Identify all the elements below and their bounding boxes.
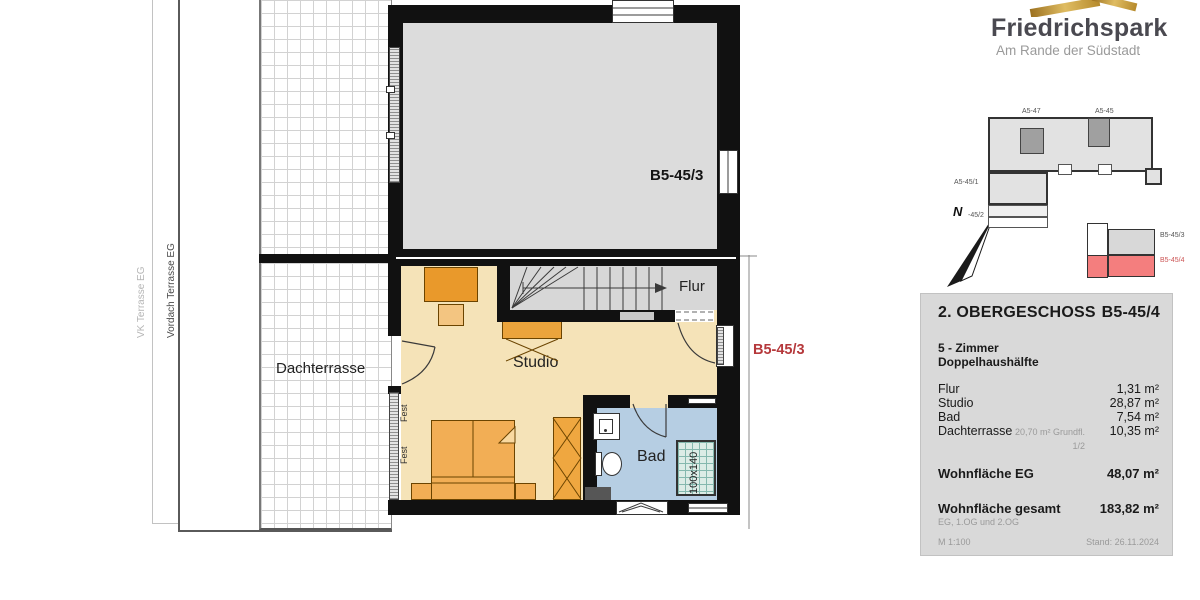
bad-door-gap [630, 395, 668, 408]
siteplan-label-a5451: A5-45/1 [954, 179, 979, 186]
nightstand [515, 483, 536, 500]
party-wall-seam [396, 257, 736, 259]
desk [424, 267, 478, 302]
neighbor-room-floor [403, 23, 717, 249]
siteplan-notch [1058, 164, 1072, 175]
neighbor-right-window [719, 150, 738, 194]
door-threshold [620, 312, 654, 320]
total-note: EG, 1.OG und 2.OG [938, 517, 1019, 527]
siteplan-right-stub [1145, 168, 1162, 185]
key-plan: B5-45/3 B5-45/4 [1080, 218, 1200, 288]
scale-label: M 1:100 [938, 537, 971, 547]
bad-label: Bad [637, 448, 665, 466]
area-label: Studio [938, 396, 973, 410]
siteplan-notch [1098, 164, 1112, 175]
bed [431, 420, 515, 500]
info-panel: 2. OBERGESCHOSS B5-45/4 5 - Zimmer Doppe… [920, 293, 1173, 556]
panel-unit-title: B5-45/4 [1102, 304, 1160, 322]
siteplan-terrace-strip [988, 205, 1048, 217]
flur-opening [675, 310, 714, 322]
area-label: Bad [938, 410, 960, 424]
area-value: 28,87 m² [1095, 396, 1159, 410]
logo-title: Friedrichspark [991, 14, 1167, 43]
left-wall-upper [388, 266, 401, 336]
keyplan-unit-upper [1108, 229, 1155, 255]
studio-left-window-strip [389, 392, 399, 500]
total-row: Wohnfläche EG 48,07 m² [938, 466, 1159, 481]
area-value: 1,31 m² [1095, 382, 1159, 396]
area-label: Flur [938, 382, 960, 396]
area-row: Bad 7,54 m² [938, 410, 1159, 424]
panel-footer: M 1:100 Stand: 26.11.2024 [938, 537, 1159, 547]
toilet-bowl [602, 452, 622, 476]
area-value: 10,35 m² [1095, 424, 1159, 438]
north-letter: N [953, 204, 962, 219]
terrace-divider-wall [259, 254, 389, 263]
wardrobe [553, 417, 581, 500]
date-label: Stand: 26.11.2024 [1086, 537, 1159, 547]
vk-terrasse-label: VK Terrasse EG [136, 228, 147, 338]
keyplan-left-bottom [1087, 255, 1108, 278]
shower-window [688, 503, 728, 513]
siteplan-label-452: -45/2 [968, 212, 984, 219]
siteplan-label-a545: A5-45 [1095, 108, 1114, 115]
panel-type-line: 5 - Zimmer [938, 341, 1039, 355]
fest-label: Fest [399, 396, 409, 422]
upper-terrace-grid [259, 0, 392, 254]
area-note: 20,70 m² Grundfl. 1/2 [1012, 425, 1085, 453]
area-value: 7,54 m² [1095, 410, 1159, 424]
siteplan-dark-room [1020, 128, 1044, 154]
neighbor-room-label: B5-45/3 [650, 167, 703, 184]
total-row: Wohnfläche gesamt 183,82 m² [938, 501, 1159, 516]
panel-floor-title: 2. OBERGESCHOSS [938, 304, 1096, 322]
siteplan-label-a547: A5-47 [1022, 108, 1041, 115]
siteplan-left-wing [988, 172, 1048, 205]
area-row: Flur 1,31 m² [938, 382, 1159, 396]
studio-label: Studio [513, 354, 558, 372]
table [502, 319, 562, 339]
total-value: 48,07 m² [1107, 466, 1159, 481]
keyplan-label-upper: B5-45/3 [1160, 232, 1185, 239]
vordach-terrasse-label: Vordach Terrasse EG [166, 218, 177, 338]
right-wall [717, 266, 740, 500]
adjacent-unit-label: B5-45/3 [753, 342, 805, 358]
area-row: Dachterrasse 20,70 m² Grundfl. 1/2 10,35… [938, 424, 1159, 453]
toilet-tank [595, 452, 602, 476]
right-wall-glazing [717, 327, 724, 365]
bad-step [585, 487, 611, 500]
area-label: Dachterrasse [938, 424, 1012, 438]
total-label: Wohnfläche EG [938, 466, 1034, 481]
keyplan-unit-lower [1108, 255, 1155, 277]
bad-left-wall [583, 395, 597, 500]
keyplan-label-lower: B5-45/4 [1160, 257, 1185, 264]
area-row: Studio 28,87 m² [938, 396, 1159, 410]
panel-type-line: Doppelhaushälfte [938, 355, 1039, 369]
neighbor-left-window-strip [389, 47, 400, 183]
window-mullion [386, 86, 395, 93]
dachterrasse-grid [259, 263, 392, 530]
neighbor-top-window [612, 0, 674, 23]
total-value: 183,82 m² [1100, 501, 1159, 516]
siteplan-dark-room [1088, 118, 1110, 147]
logo-subtitle: Am Rande der Südstadt [996, 43, 1140, 58]
siteplan-terrace-strip [988, 217, 1048, 228]
flur-label: Flur [679, 278, 705, 295]
sink-drain [604, 429, 607, 432]
nightstand [411, 483, 432, 500]
desk-chair [438, 304, 464, 326]
fest-label: Fest [399, 438, 409, 464]
floorplan-page: VK Terrasse EG Vordach Terrasse EG Dacht… [0, 0, 1200, 600]
neighbor-outline [740, 255, 757, 529]
shower-size-label: 100x140 [688, 442, 700, 494]
window-mullion [386, 132, 395, 139]
bad-top-slit-window [688, 398, 716, 404]
bad-tilt-window [616, 501, 668, 515]
area-table: Flur 1,31 m² Studio 28,87 m² Bad 7,54 m²… [938, 382, 1159, 453]
total-label: Wohnfläche gesamt [938, 501, 1061, 516]
dachterrasse-label: Dachterrasse [276, 360, 365, 377]
